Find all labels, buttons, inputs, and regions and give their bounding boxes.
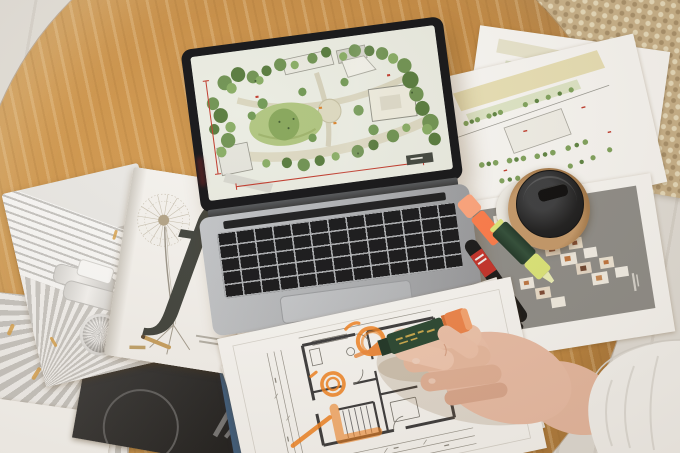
fingernail: [412, 358, 420, 364]
workspace-photo: f: [0, 0, 680, 453]
hand-holding-highlighter: [0, 0, 680, 453]
fresh-orange-mark: [356, 352, 366, 356]
sleeve: [588, 340, 680, 453]
fingernail: [428, 378, 435, 384]
ring-finger: [430, 374, 492, 382]
pinky-finger: [452, 390, 500, 398]
thumb: [404, 350, 444, 360]
